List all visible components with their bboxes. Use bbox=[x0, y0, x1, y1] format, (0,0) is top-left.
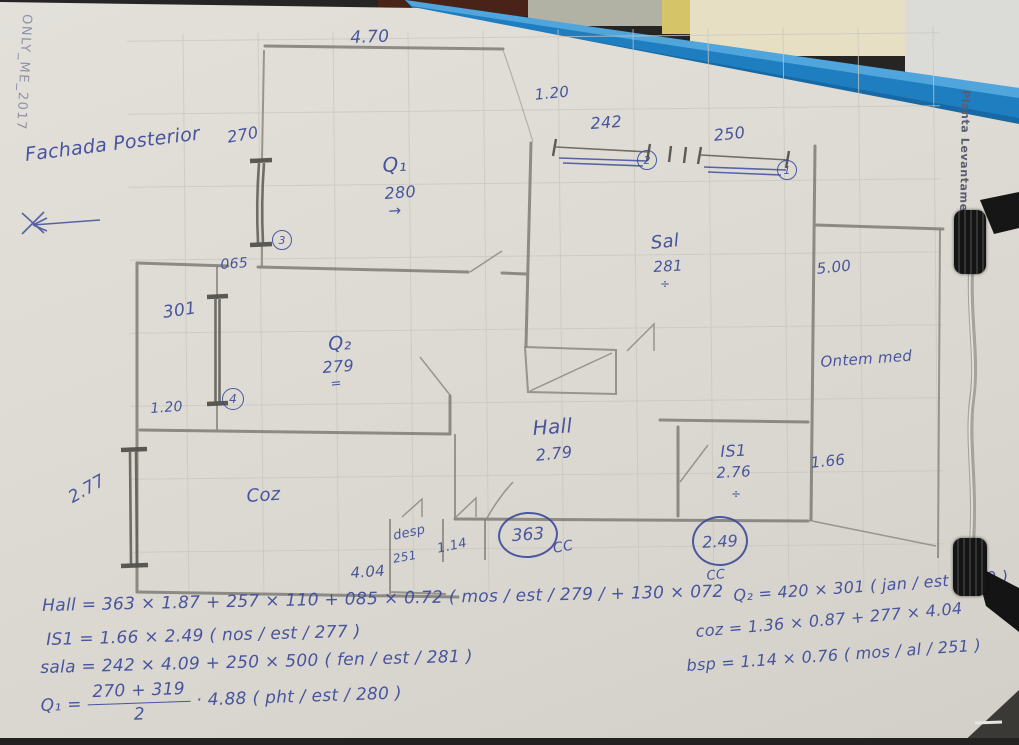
clip-top-grip bbox=[954, 210, 986, 274]
clip-hardware bbox=[0, 0, 1019, 745]
photo-scene: ONLY_ME_2017 Planta Levantamento Fachada… bbox=[0, 0, 1019, 745]
clip-bottom-grip bbox=[953, 538, 987, 596]
table-edge bbox=[0, 738, 1019, 745]
